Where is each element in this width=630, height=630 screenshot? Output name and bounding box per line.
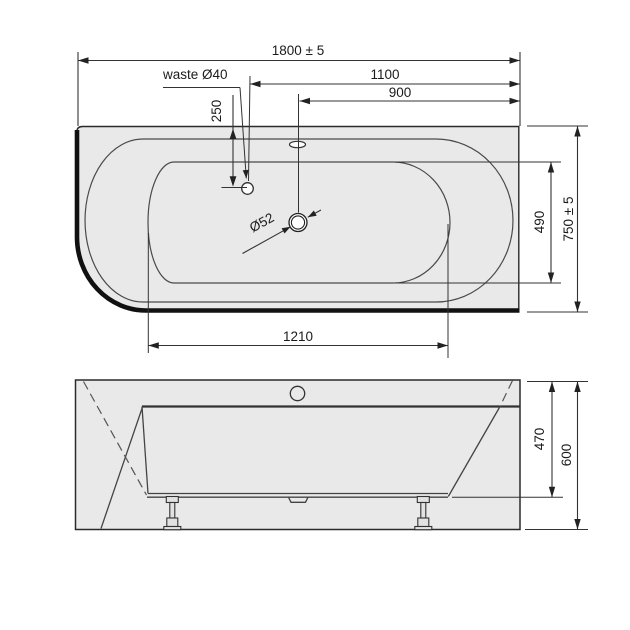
side-overflow-hole xyxy=(290,386,304,400)
dim-label-1800: 1800 ± 5 xyxy=(253,43,343,59)
top-view xyxy=(77,52,588,358)
waste-hole xyxy=(242,183,254,195)
overflow-hole xyxy=(290,141,306,147)
drain-hole xyxy=(289,214,307,232)
dim-label-900: 900 xyxy=(370,85,430,101)
drawing-geometry xyxy=(0,0,630,630)
dim-label-1210: 1210 xyxy=(268,329,328,345)
dim-label-470: 470 xyxy=(532,409,548,469)
bathtub-technical-drawing: 1800 ± 5 1100 900 waste Ø40 250 Ø52 1210… xyxy=(0,0,630,630)
dim-label-490: 490 xyxy=(532,192,548,252)
side-view xyxy=(76,380,589,530)
dim-label-1100: 1100 xyxy=(355,67,415,83)
dim-label-750: 750 ± 5 xyxy=(561,184,577,254)
panel-outline xyxy=(76,380,521,530)
dim-label-250: 250 xyxy=(209,81,225,141)
dim-label-600: 600 xyxy=(559,425,575,485)
